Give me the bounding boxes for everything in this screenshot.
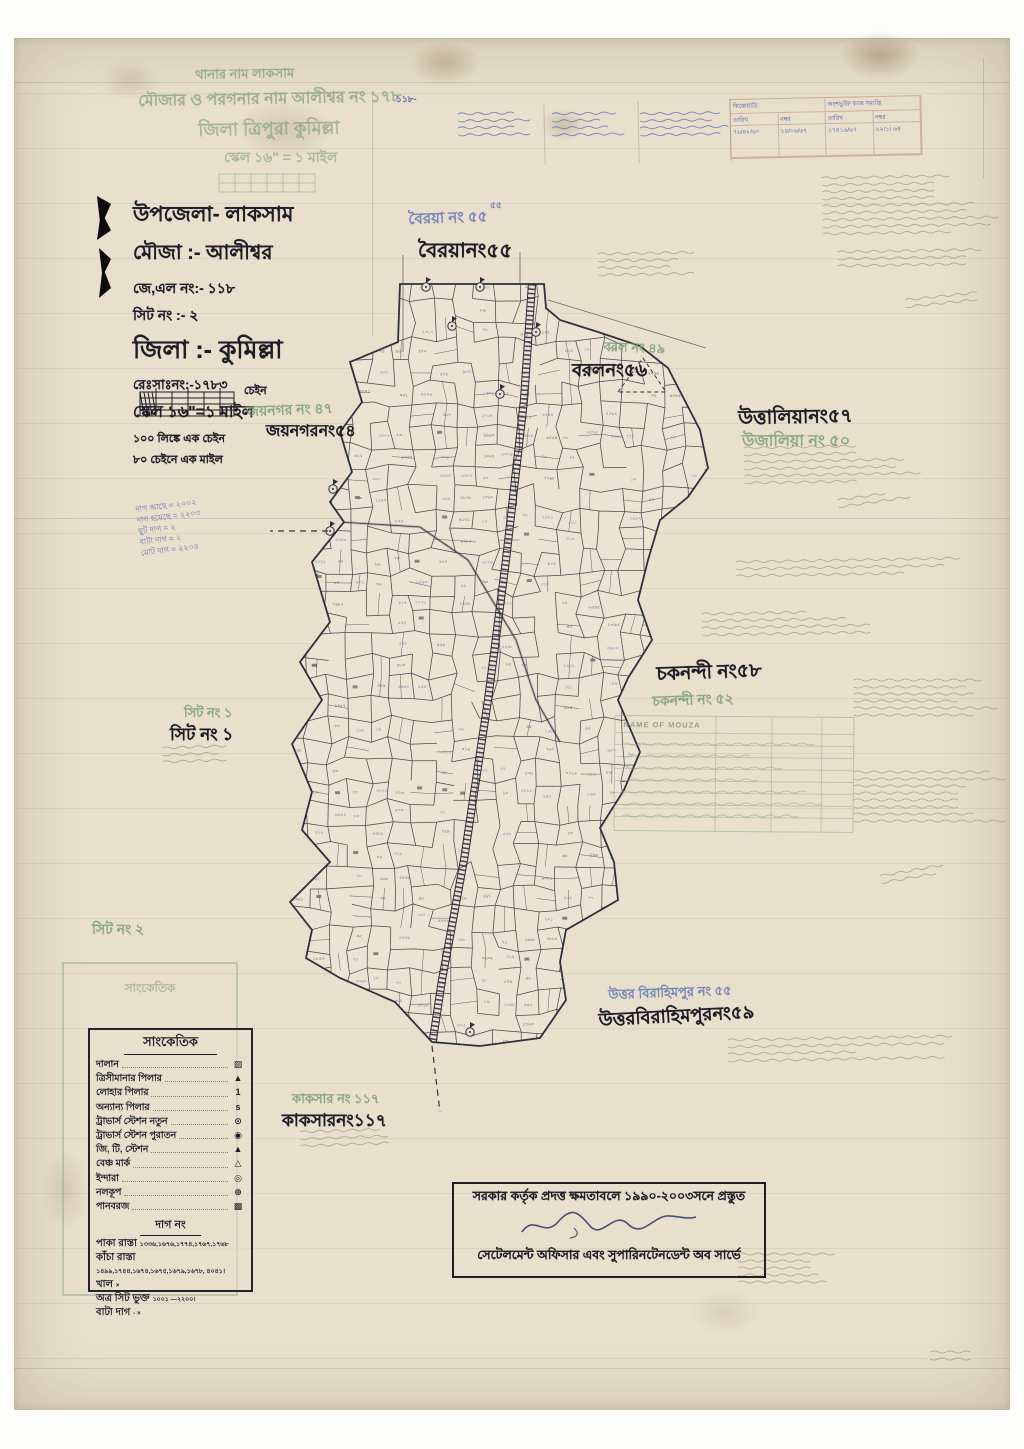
table-rule: [820, 718, 822, 832]
legend-label: পানবরজ: [96, 1199, 129, 1213]
table-rule: [615, 816, 853, 819]
plot-count-notes: দাগ আছে = ২০০২ দাগ হয়েছে = ২২০৩ ছুট দাগ…: [135, 496, 205, 558]
mouza-line: মৌজা :- আলীশ্বর: [133, 238, 293, 271]
bench-mark-symbol: △: [231, 1156, 245, 1170]
legend-leader: [165, 1081, 228, 1082]
record-subhead: নম্বর: [873, 110, 921, 123]
legend-label: ইন্দারা: [96, 1171, 119, 1185]
dag-label: বাটা দাগ: [96, 1307, 130, 1318]
record-value: ১৭৪১৬/৬৭: [826, 123, 874, 156]
legend-leader: [151, 1152, 228, 1153]
legend-row: ট্রাভার্স স্টেশন পুরাতন◉: [96, 1128, 245, 1142]
label-sheet2-ghost: সিট নং ২: [92, 918, 144, 942]
paper-seam: [14, 82, 1010, 83]
table-rule: [615, 804, 853, 807]
dag-label: পাকা রাস্তা: [96, 1238, 137, 1249]
legend-label: নলকূপ: [96, 1185, 121, 1199]
table-rule: [615, 744, 853, 747]
legend-leader: [124, 1195, 228, 1196]
traverse-station-old-symbol: ◉: [231, 1128, 245, 1142]
label-chawknondi: চকনন্দী নং৫৮: [656, 656, 762, 692]
legend-leader: [132, 1209, 228, 1210]
label-boiroya: বৈরয়ানং৫৫: [418, 236, 512, 269]
legend-label: বেঞ্চ মার্ক: [96, 1156, 130, 1170]
dag-row: অত্র সিট ভুক্ত ১০০১ —২২০০।: [96, 1292, 245, 1306]
sheet-no-line: সিট নং :- ২: [133, 304, 293, 328]
table-rule: [615, 732, 853, 735]
legend-label: ত্রিসীমানার পিলার: [96, 1071, 162, 1085]
dag-label: অত্র সিট ভুক্ত: [96, 1293, 150, 1304]
record-value: ২২।১। ৬৪: [873, 122, 921, 155]
legend-row: ট্রাভার্স স্টেশন নতুন⊙: [96, 1114, 245, 1128]
ghost-title-line: থানার নাম লাকসাম: [195, 64, 294, 87]
legend-row: বেঞ্চ মার্ক△: [96, 1156, 245, 1170]
upazila-line: উপজেলা- লাকসাম: [133, 198, 293, 233]
tri-boundary-pillar-symbol: ▲: [231, 1071, 245, 1085]
legend-label: জি, টি, স্টেশন: [96, 1142, 148, 1156]
chains-mile-line: ৮০ চেইনে এক মাইল: [133, 451, 293, 470]
dag-row: পাকা রাস্তা ১৩৩৬,১৬৭৬,১৭৭৪,১৭৬৭,১৭৬৮: [96, 1237, 245, 1251]
record-grid: কিস্তোয়ারি অংশভুক্তি কাজ সমাপ্তি তারিখ …: [729, 95, 922, 159]
ghost-legend-title: সাংকেতিক: [64, 980, 236, 1000]
dag-value: ১০০১ —২২০০।: [152, 1296, 195, 1303]
legend-row: পানবরজ▩: [96, 1199, 245, 1213]
table-rule: [615, 792, 853, 795]
table-rule: [615, 780, 853, 783]
label-uttalia-ghost: উজালিয়া নং ৫০: [742, 428, 850, 455]
legend-leader: [122, 1067, 228, 1068]
dag-value: ১৩৩৬,১৬৭৬,১৭৭৪,১৭৬৭,১৭৬৮: [140, 1241, 229, 1248]
legend-label: ট্রাভার্স স্টেশন নতুন: [96, 1114, 168, 1128]
record-subhead: তারিখ: [826, 111, 874, 124]
dag-value: ১৪৯৯,১৭৪৪,১৬৭৪,১৬৭৫,১৬৭৯,১৬৭৮, ৪০৪১।: [96, 1268, 225, 1275]
legend-leader: [151, 1096, 228, 1097]
ghost-scale-bar: [218, 170, 318, 196]
table-rule: [771, 717, 773, 831]
mouza-table-header: NAME OF MOUZA: [623, 720, 700, 730]
record-value: ১৪/০৬/৬৭: [778, 124, 826, 157]
jl-no-line: জে,এল নং:- ১১৮: [133, 277, 293, 301]
fold-line: [372, 92, 373, 336]
betel-garden-symbol: ▩: [231, 1199, 245, 1213]
scale-unit-label: চেইন: [244, 382, 267, 401]
fold-line: [983, 58, 984, 178]
legend-row: দালান▨: [96, 1057, 245, 1071]
district-line: জিলা :- কুমিল্লা: [133, 330, 293, 373]
record-subhead: তারিখ: [731, 113, 779, 126]
record-value: ৭৬/৪৮/৬০: [731, 125, 779, 158]
legend-label: অন্যান্য পিলার: [96, 1100, 150, 1114]
paper-seam: [14, 1368, 1010, 1369]
mouza-list-table: NAME OF MOUZA: [613, 715, 854, 833]
label-borol: বরলনং৫৬: [572, 356, 647, 387]
label-chawknondi-ghost: চকনন্দী নং ৫২: [652, 687, 734, 714]
legend-leader: [153, 1110, 228, 1111]
dag-label: কাঁচা রাস্তা: [96, 1252, 135, 1263]
legend-row: লোহার পিলার1: [96, 1085, 245, 1099]
dag-row: খাল ×: [96, 1278, 245, 1292]
ghost-title-line: মৌজার ও পরগনার নাম আলীশ্বর নং ১৭৮: [138, 83, 402, 115]
scale-bar: [136, 384, 256, 424]
table-rule: [615, 756, 853, 759]
dag-section-title: দাগ নং: [140, 1216, 201, 1236]
legend-row: ইন্দারা◎: [96, 1171, 245, 1185]
traverse-station-new-symbol: ⊙: [231, 1114, 245, 1128]
label-joynagar: জয়নগরনং৫৪: [266, 418, 356, 445]
iron-pillar-symbol: 1: [231, 1085, 245, 1099]
legend-title: সাংকেতিক: [124, 1033, 217, 1055]
legend-row: নলকূপ⊕: [96, 1185, 245, 1199]
legend-row: জি, টি, স্টেশন▲: [96, 1142, 245, 1156]
label-sheet1: সিট নং ১: [170, 722, 233, 750]
dag-row: বাটা দাগ - ×: [96, 1306, 245, 1320]
stamp-line1: সরকার কর্তৃক প্রদত্ত ক্ষমতাবলে ১৯৯০-২০০৩…: [454, 1188, 764, 1208]
legend-row: ত্রিসীমানার পিলার▲: [96, 1071, 245, 1085]
legend-leader: [122, 1181, 228, 1182]
scanned-cadastral-map-page: ৮২৭৫০৮৯০৩৫৩৯৩৫৩৭৪৯৯৫১৩৪১৫১৪৮৯৬৫২৩০১৩৬১২১…: [0, 0, 1024, 1449]
gt-station-symbol: ▲: [231, 1142, 245, 1156]
legend-label: ট্রাভার্স স্টেশন পুরাতন: [96, 1128, 176, 1142]
dag-value: - ×: [133, 1310, 141, 1317]
dag-label: খাল: [96, 1279, 113, 1290]
legend-label: লোহার পিলার: [96, 1085, 148, 1099]
stamp-line2: সেটেলমেন্ট অফিসার এবং সুপারিনটেনডেন্ট অব…: [454, 1247, 764, 1267]
table-rule: [715, 717, 717, 831]
dag-value: ×: [116, 1282, 120, 1289]
legend-box: সাংকেতিক দালান▨ ত্রিসীমানার পিলার▲ লোহার…: [88, 1028, 253, 1292]
ghost-title-line: স্কেল ১৬" = ১ মাইল: [224, 146, 337, 170]
legend-label: দালান: [96, 1057, 119, 1071]
label-boiroya-ghost: বৈরয়া নং ৫৫: [408, 205, 488, 233]
ghost-title-line: জিলা ত্রিপুরা কুমিল্লা: [198, 114, 340, 147]
preparation-stamp: সরকার কর্তৃক প্রদত্ত ক্ষমতাবলে ১৯৯০-২০০৩…: [452, 1182, 766, 1278]
record-subhead: নম্বর: [778, 112, 826, 125]
handwritten-record-table: কিস্তোয়ারি অংশভুক্তি কাজ সমাপ্তি তারিখ …: [451, 95, 922, 167]
table-rule: [615, 768, 853, 771]
legend-row: অন্যান্য পিলারs: [96, 1100, 245, 1114]
well-symbol: ◎: [231, 1171, 245, 1185]
table-rule: [543, 103, 545, 165]
building-symbol: ▨: [231, 1057, 245, 1071]
label-blue-55: ৫৫: [490, 198, 502, 213]
label-kaksar: কাকসারনং১১৭: [282, 1108, 387, 1136]
legend-leader: [171, 1124, 228, 1125]
legend-leader: [179, 1138, 228, 1139]
blue-jl-note: ১১৮-: [396, 92, 417, 107]
dag-row: কাঁচা রাস্তা ১৪৯৯,১৭৪৪,১৬৭৪,১৬৭৫,১৬৭৯,১৬…: [96, 1251, 245, 1278]
tubewell-symbol: ⊕: [231, 1185, 245, 1199]
table-rule: [637, 101, 639, 163]
other-pillar-symbol: s: [231, 1100, 245, 1114]
officer-signature: [514, 1208, 704, 1242]
legend-leader: [133, 1167, 228, 1168]
